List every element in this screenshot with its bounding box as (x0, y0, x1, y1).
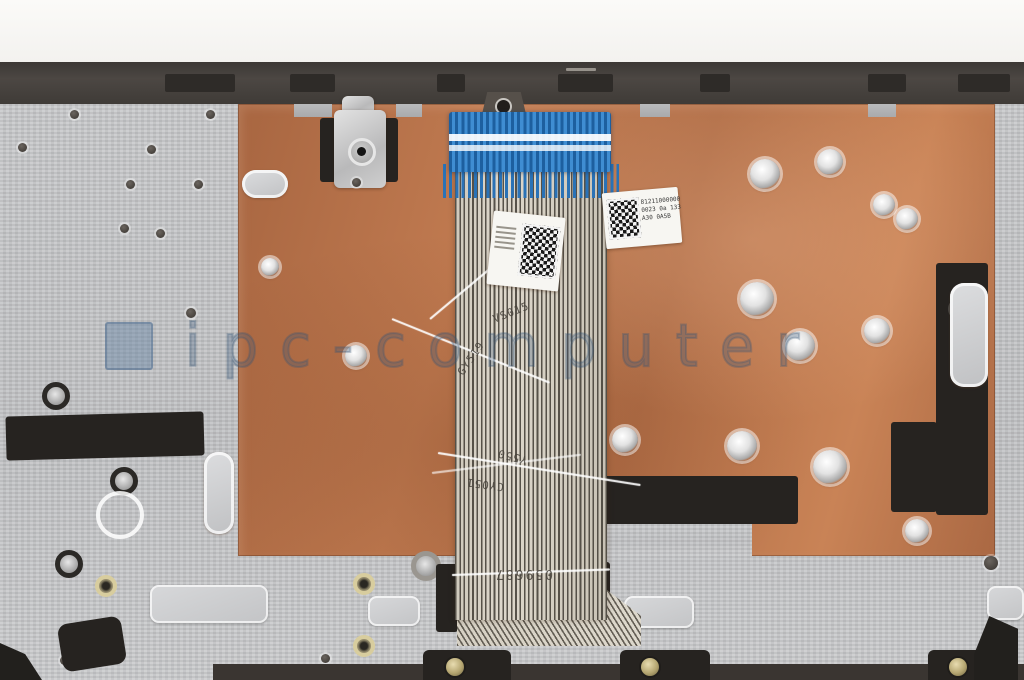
standoff-rivet (727, 431, 757, 461)
screw-hole (194, 180, 203, 189)
foam-strip (578, 476, 798, 524)
background-top (0, 0, 1024, 62)
rubber-foot (57, 615, 128, 672)
embossed-plateau (368, 596, 420, 626)
screw-hole (357, 147, 366, 156)
screw-post (353, 573, 375, 595)
label-text-line (496, 226, 516, 230)
standoff-rivet (873, 194, 895, 216)
standoff-rivet (896, 208, 918, 230)
screw-hole (120, 224, 129, 233)
copper-edge-notch (640, 104, 670, 117)
screw-hole (186, 308, 196, 318)
standoff-rivet (864, 318, 890, 344)
touchpad-bracket (423, 650, 511, 680)
screw-hole (206, 110, 215, 119)
standoff-rivet (261, 258, 279, 276)
embossed-plateau (987, 586, 1024, 620)
screw-hole (18, 143, 27, 152)
copper-cutout (594, 524, 752, 556)
rubber-grommet (55, 550, 83, 578)
embossed-circle (96, 491, 144, 539)
bracket-pad-right (384, 118, 398, 182)
copper-qr-label: 81211000000 0023 0a 133 A30 0A5B (602, 187, 683, 249)
standoff-rivet (345, 345, 367, 367)
embossed-pill (204, 452, 234, 534)
standoff-rivet (905, 519, 929, 543)
standoff-rivet (813, 450, 847, 484)
embossed-pill (950, 283, 988, 387)
copper-edge-notch (294, 104, 332, 117)
rubber-strip (5, 411, 204, 460)
qr-code (606, 197, 641, 240)
screw-hole (147, 145, 156, 154)
screw (641, 658, 659, 676)
bezel-slot (558, 74, 613, 92)
alignment-hole (352, 178, 361, 187)
bezel-slot (437, 74, 465, 92)
label-code: A30 0A5B (642, 212, 677, 223)
standoff-rivet (750, 159, 780, 189)
screw-hole (156, 229, 165, 238)
foam-pad (891, 422, 937, 512)
bezel-slot (165, 74, 235, 92)
screw-hole (126, 180, 135, 189)
qr-code (517, 224, 560, 280)
bezel-slot (290, 74, 335, 92)
product-photo: VS015 GY519 Y550 CY051 059687 8121100000… (0, 0, 1024, 680)
embossed-plateau (150, 585, 268, 623)
copper-edge-notch (868, 104, 896, 117)
standoff-rivet (612, 427, 638, 453)
bezel-slot (868, 74, 906, 92)
screw-hole (321, 654, 330, 663)
blue-ffc-connector (449, 112, 611, 172)
screw-post (95, 575, 117, 597)
screw (949, 658, 967, 676)
touchpad-bracket (620, 650, 710, 680)
rubber-grommet (42, 382, 70, 410)
copper-edge-notch (396, 104, 422, 117)
bottom-rail (213, 664, 1024, 680)
label-text-line (494, 246, 514, 250)
bezel-slot (700, 74, 730, 92)
label-text-line (496, 231, 516, 235)
screw-hole (70, 110, 79, 119)
standoff-rivet (740, 282, 774, 316)
label-text-line (495, 241, 515, 245)
embossed-pill (242, 170, 288, 198)
cable-marking: 059687 (494, 566, 553, 581)
standoff-rivet (817, 149, 843, 175)
screw-post (353, 635, 375, 657)
connector-stripe (449, 145, 611, 151)
bezel-marking (566, 68, 596, 71)
label-text-line (495, 236, 515, 240)
screw (446, 658, 464, 676)
connector-stripe (449, 134, 611, 141)
standoff-rivet (785, 331, 815, 361)
bezel-slot (958, 74, 1010, 92)
cable-qr-label (486, 210, 565, 291)
screw-hole (984, 556, 998, 570)
